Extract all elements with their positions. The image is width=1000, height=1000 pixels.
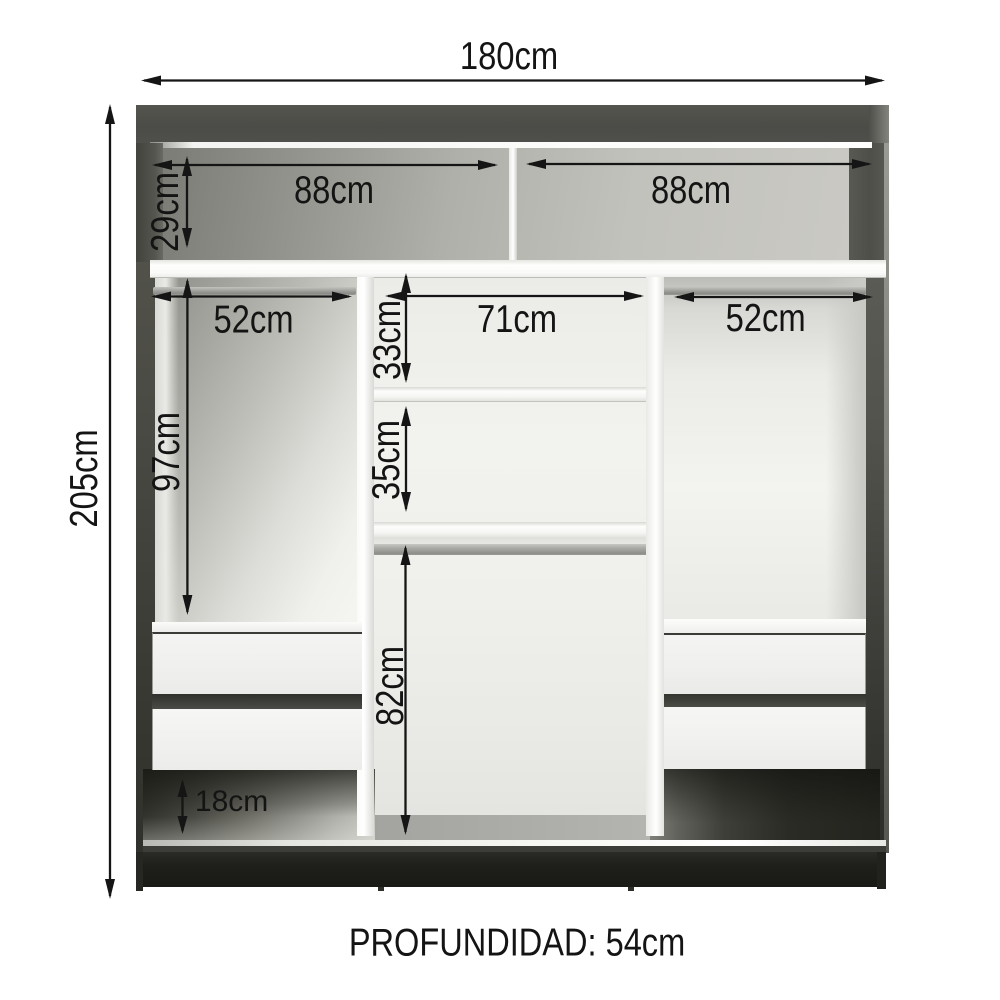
svg-text:18cm: 18cm <box>195 785 268 818</box>
svg-text:180cm: 180cm <box>460 33 558 77</box>
svg-text:52cm: 52cm <box>213 297 293 341</box>
svg-text:205cm: 205cm <box>61 429 105 527</box>
svg-text:97cm: 97cm <box>143 412 187 492</box>
svg-text:33cm: 33cm <box>364 300 408 380</box>
svg-text:88cm: 88cm <box>651 167 731 211</box>
svg-text:71cm: 71cm <box>477 296 557 340</box>
svg-text:29cm: 29cm <box>142 172 186 252</box>
svg-text:PROFUNDIDAD: 54cm: PROFUNDIDAD: 54cm <box>349 920 685 965</box>
svg-text:35cm: 35cm <box>363 420 407 500</box>
svg-text:88cm: 88cm <box>294 167 374 211</box>
svg-text:52cm: 52cm <box>726 295 806 339</box>
svg-text:82cm: 82cm <box>367 646 411 726</box>
